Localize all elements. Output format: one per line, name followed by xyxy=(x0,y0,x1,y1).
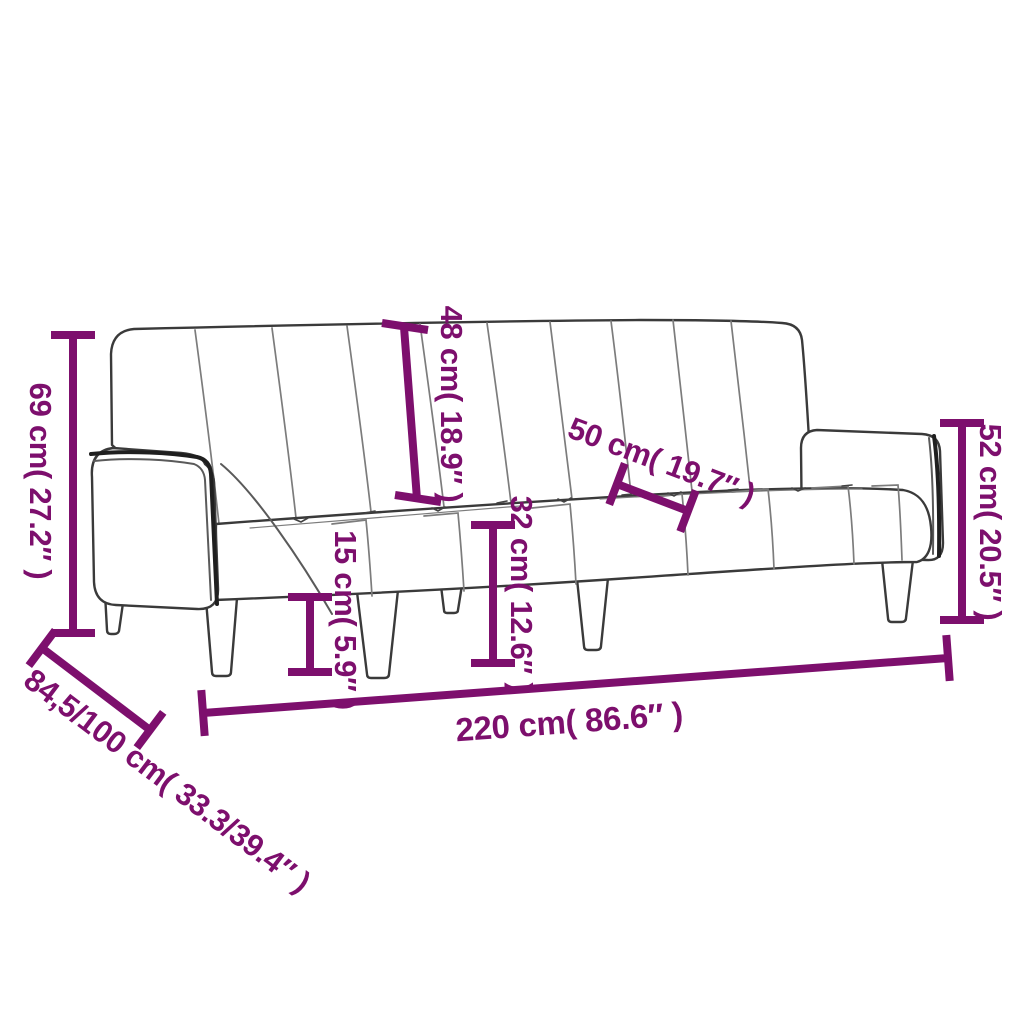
dimension-52cm: 52 cm( 20.5″ ) xyxy=(940,423,1008,620)
dimension-69cm: 69 cm( 27.2″ ) xyxy=(23,335,95,633)
sofa-leg xyxy=(882,560,913,622)
dimension-diagram-svg: 69 cm( 27.2″ ) 48 cm( 18.9″ ) 50 cm( 19.… xyxy=(0,0,1024,1024)
sofa-leg xyxy=(577,578,608,650)
dimension-32cm-label: 32 cm( 12.6″ ) xyxy=(504,496,539,693)
dimension-69cm-label: 69 cm( 27.2″ ) xyxy=(23,383,58,580)
dimension-84-100cm: 84,5/100 cm( 33.3/39.4″ ) xyxy=(18,630,317,899)
product-dimension-diagram: 69 cm( 27.2″ ) 48 cm( 18.9″ ) 50 cm( 19.… xyxy=(0,0,1024,1024)
dimension-84-100cm-label: 84,5/100 cm( 33.3/39.4″ ) xyxy=(18,662,317,900)
dimension-15cm-line xyxy=(288,597,332,672)
dimension-15cm-label: 15 cm( 5.9″ ) xyxy=(328,530,363,710)
dimension-32cm: 32 cm( 12.6″ ) xyxy=(471,496,539,693)
dimension-220cm-label: 220 cm( 86.6″ ) xyxy=(454,695,684,749)
dimension-52cm-label: 52 cm( 20.5″ ) xyxy=(973,424,1008,621)
dimension-48cm-label: 48 cm( 18.9″ ) xyxy=(434,306,469,503)
sofa-leg xyxy=(206,598,237,676)
